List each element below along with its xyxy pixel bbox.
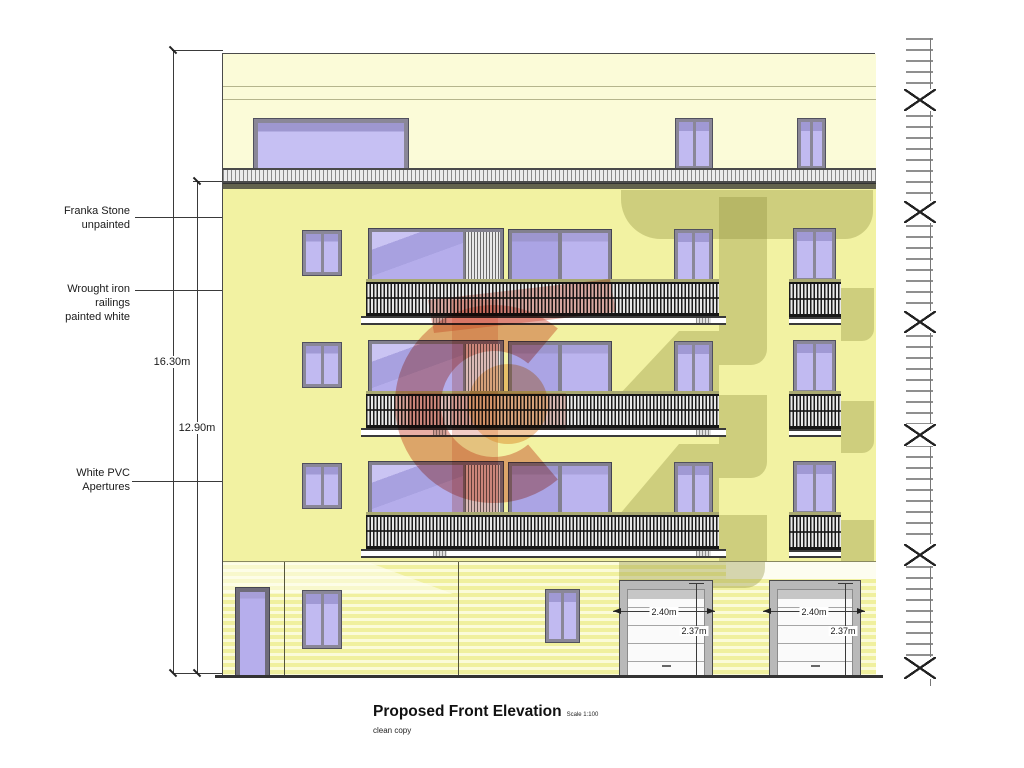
break-x-mark xyxy=(904,657,936,679)
sliding-door xyxy=(509,230,611,282)
juliet-door xyxy=(794,229,835,281)
dim-ext-top xyxy=(172,50,223,51)
main-facade xyxy=(223,189,876,561)
drawing-title: Proposed Front Elevation xyxy=(373,703,562,720)
balcony-railing xyxy=(366,394,719,428)
glass-pane xyxy=(372,232,463,279)
level-1 xyxy=(223,462,876,562)
sliding-door xyxy=(509,342,611,394)
juliet-door xyxy=(794,462,835,514)
drawing-note: clean copy xyxy=(373,726,411,735)
ground-floor xyxy=(223,561,876,676)
masonry-joint xyxy=(284,562,285,676)
penthouse-window xyxy=(798,119,825,169)
dim-arrow xyxy=(707,608,715,614)
glass-pane xyxy=(558,345,608,391)
parapet-line xyxy=(223,86,876,87)
penthouse-window xyxy=(676,119,712,169)
slab-drip-detail xyxy=(433,318,447,323)
juliet-slab xyxy=(789,429,841,437)
juliet-railing xyxy=(789,282,841,317)
ground-line xyxy=(215,675,883,678)
glass-pane xyxy=(512,345,558,391)
juliet-railing xyxy=(789,515,841,550)
building-outline xyxy=(222,53,875,675)
dim-label-garage2-height: 2.37m xyxy=(828,626,857,636)
bedroom-window xyxy=(303,231,341,275)
glass-pane xyxy=(372,465,463,512)
dim-end-tick xyxy=(689,583,704,584)
juliet-slab xyxy=(789,550,841,558)
dim-arrow xyxy=(613,608,621,614)
drawing-scale: Scale 1:100 xyxy=(567,712,599,718)
dim-label-garage1-width: 2.40m xyxy=(649,607,678,617)
break-x-mark xyxy=(904,89,936,111)
bedroom-window xyxy=(303,464,341,508)
glass-pane xyxy=(558,233,608,279)
slab-drip-detail xyxy=(696,551,711,556)
dim-label-upper-height: 12.90m xyxy=(177,422,218,434)
glass-pane xyxy=(372,344,463,391)
glass-pane xyxy=(512,233,558,279)
dim-label-garage1-height: 2.37m xyxy=(679,626,708,636)
louver-shutter xyxy=(463,232,500,279)
break-x-mark xyxy=(904,201,936,223)
break-x-mark xyxy=(904,311,936,333)
break-x-mark xyxy=(904,544,936,566)
juliet-slab xyxy=(789,317,841,325)
slab-drip-detail xyxy=(696,318,711,323)
glass-pane xyxy=(512,466,558,512)
level-2 xyxy=(223,341,876,441)
tall-window xyxy=(675,342,712,394)
entrance-door xyxy=(236,588,269,675)
balcony-railing xyxy=(366,282,719,316)
elevation-drawing-sheet: Franka Stone unpainted Wrought iron rail… xyxy=(0,0,1024,768)
dim-label-garage2-width: 2.40m xyxy=(799,607,828,617)
penthouse-level xyxy=(223,54,876,183)
ground-window xyxy=(303,591,341,648)
balcony-slab xyxy=(361,428,726,437)
tall-window xyxy=(675,463,712,515)
annotation-wrought-iron: Wrought iron railings painted white xyxy=(5,282,130,324)
party-wall-hatch xyxy=(906,38,933,686)
louver-shutter xyxy=(463,344,500,391)
garage-handle xyxy=(662,665,671,667)
slab-drip-detail xyxy=(696,430,711,435)
slab-drip-detail xyxy=(433,430,447,435)
masonry-joint xyxy=(458,562,459,676)
balcony-door-unit xyxy=(369,462,503,515)
juliet-railing xyxy=(789,394,841,429)
ground-window xyxy=(546,590,579,642)
sliding-door xyxy=(509,463,611,515)
dim-arrow xyxy=(763,608,771,614)
balcony-railing xyxy=(366,515,719,549)
roof-terrace-railing xyxy=(223,168,876,183)
balcony-door-unit xyxy=(369,341,503,394)
juliet-door xyxy=(794,341,835,393)
dim-label-overall-height: 16.30m xyxy=(152,356,193,368)
party-wall-line xyxy=(930,38,931,686)
annotation-franka-stone: Franka Stone unpainted xyxy=(5,204,130,232)
balcony-door-unit xyxy=(369,229,503,282)
slab-drip-detail xyxy=(433,551,447,556)
level-3 xyxy=(223,229,876,329)
parapet-line xyxy=(223,99,876,100)
balcony-slab xyxy=(361,316,726,325)
tall-window xyxy=(675,230,712,282)
balcony-slab xyxy=(361,549,726,558)
penthouse-large-window xyxy=(254,119,408,173)
bedroom-window xyxy=(303,343,341,387)
dim-end-tick xyxy=(838,583,853,584)
title-block: Proposed Front ElevationScale 1:100 xyxy=(373,703,598,721)
louver-shutter xyxy=(463,465,500,512)
dim-arrow xyxy=(857,608,865,614)
break-x-mark xyxy=(904,424,936,446)
annotation-white-pvc: White PVC Apertures xyxy=(5,466,130,494)
garage-handle xyxy=(811,665,820,667)
glass-pane xyxy=(558,466,608,512)
